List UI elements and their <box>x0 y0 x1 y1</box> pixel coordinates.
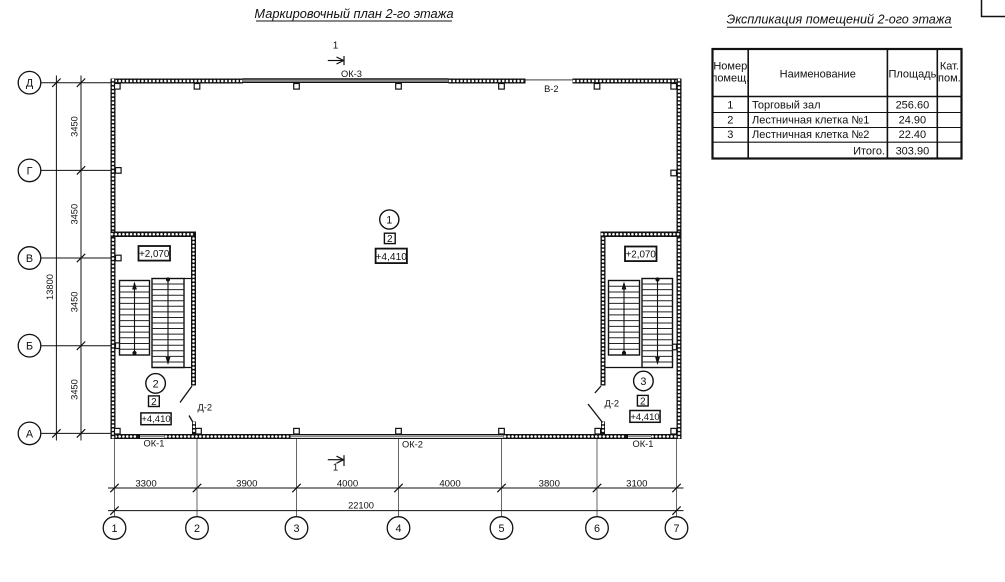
svg-text:24.90: 24.90 <box>899 114 927 126</box>
svg-text:2: 2 <box>151 397 157 408</box>
svg-text:Наименование: Наименование <box>780 69 856 81</box>
svg-text:Торговый зал: Торговый зал <box>752 99 821 111</box>
svg-text:Д: Д <box>26 78 34 90</box>
svg-text:3: 3 <box>293 523 299 535</box>
svg-text:Лестничная клетка №2: Лестничная клетка №2 <box>752 129 869 141</box>
svg-text:3450: 3450 <box>70 204 80 225</box>
svg-text:ОК-3: ОК-3 <box>341 69 362 79</box>
svg-text:4: 4 <box>395 523 401 535</box>
svg-text:пом.: пом. <box>938 73 961 85</box>
svg-text:3300: 3300 <box>135 478 156 489</box>
svg-text:Д-2: Д-2 <box>198 402 213 412</box>
svg-text:2: 2 <box>640 397 646 408</box>
svg-text:3450: 3450 <box>70 292 80 313</box>
svg-text:А: А <box>26 428 34 440</box>
svg-text:1: 1 <box>386 214 392 226</box>
svg-text:6: 6 <box>594 523 600 535</box>
svg-text:В: В <box>26 253 33 265</box>
svg-text:Итого.: Итого. <box>853 145 885 157</box>
svg-text:Лестничная клетка №1: Лестничная клетка №1 <box>752 114 869 126</box>
svg-text:3100: 3100 <box>626 478 647 489</box>
svg-text:+4,410: +4,410 <box>630 412 659 423</box>
svg-text:ОК-1: ОК-1 <box>144 438 165 448</box>
svg-text:3: 3 <box>640 376 646 388</box>
svg-text:Маркировочный план 2-го этажа: Маркировочный план 2-го этажа <box>254 6 453 21</box>
svg-text:В-2: В-2 <box>544 84 558 94</box>
svg-text:3800: 3800 <box>539 478 560 489</box>
svg-text:+4,410: +4,410 <box>141 414 170 425</box>
svg-text:ОК-1: ОК-1 <box>633 439 654 449</box>
svg-text:22.40: 22.40 <box>899 129 927 141</box>
svg-text:256.60: 256.60 <box>896 99 930 111</box>
svg-text:Г: Г <box>27 165 33 177</box>
svg-text:Д-2: Д-2 <box>605 398 620 408</box>
svg-text:7: 7 <box>673 523 679 535</box>
svg-text:Номер: Номер <box>713 61 747 73</box>
svg-text:13800: 13800 <box>45 274 55 300</box>
svg-text:22100: 22100 <box>348 500 374 510</box>
svg-text:помещ.: помещ. <box>711 73 749 85</box>
svg-text:303.90: 303.90 <box>896 145 930 157</box>
svg-text:2: 2 <box>194 523 200 535</box>
svg-text:2: 2 <box>153 378 159 390</box>
svg-text:1: 1 <box>111 523 117 535</box>
svg-text:2: 2 <box>727 114 733 126</box>
svg-text:3450: 3450 <box>70 379 80 400</box>
svg-text:4000: 4000 <box>439 478 460 489</box>
svg-text:ОК-2: ОК-2 <box>402 440 423 450</box>
svg-text:1: 1 <box>333 41 339 52</box>
svg-text:4000: 4000 <box>337 478 358 489</box>
svg-text:+2,070: +2,070 <box>626 250 657 261</box>
svg-text:Кат.: Кат. <box>940 61 959 73</box>
svg-text:3450: 3450 <box>70 116 80 137</box>
svg-text:Б: Б <box>26 341 33 353</box>
svg-text:1: 1 <box>727 99 733 111</box>
svg-text:+2,070: +2,070 <box>139 249 170 260</box>
svg-text:Площадь: Площадь <box>888 69 936 81</box>
svg-text:3900: 3900 <box>236 478 257 489</box>
svg-text:5: 5 <box>498 523 504 535</box>
svg-text:+4,410: +4,410 <box>375 252 407 263</box>
svg-text:1: 1 <box>333 463 339 474</box>
svg-text:3: 3 <box>727 129 733 141</box>
svg-text:Экспликация помещений 2-ого эт: Экспликация помещений 2-ого этажа <box>727 13 952 27</box>
svg-text:2: 2 <box>387 234 393 245</box>
